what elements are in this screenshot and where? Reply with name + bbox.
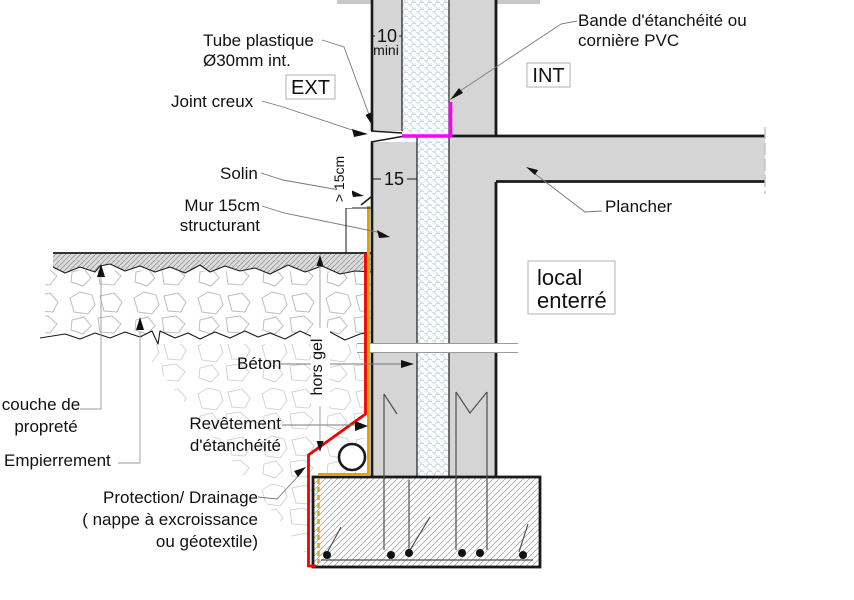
hors-gel-label: hors gel [309, 339, 326, 396]
revetement-label-2: d'étanchéité [190, 436, 281, 455]
ext-label: EXT [291, 77, 330, 99]
couche-label-1: couche de [2, 395, 80, 414]
dim-wall-thickness: 15 [384, 169, 404, 189]
construction-detail-drawing: 10 mini 15 > 15cm hors gel Tube plastiqu… [0, 0, 854, 600]
break-band [357, 343, 518, 353]
insulation-upper [402, 0, 450, 136]
tube-plastique-label-1: Tube plastique [203, 31, 314, 50]
arrowhead-joint-creux [352, 129, 368, 137]
solin-cap [361, 197, 371, 205]
plancher-label: Plancher [605, 197, 672, 216]
couche-label-2: propreté [14, 417, 77, 436]
protection-label-2: ( nappe à excroissance [82, 510, 258, 529]
facade-wall-upper [373, 0, 402, 131]
local-enterre-label-2: enterré [537, 288, 607, 313]
dim-facade-thickness-note: mini [373, 42, 399, 58]
structural-wall-lower [373, 142, 417, 477]
empierrement-label: Empierrement [4, 451, 111, 470]
bande-label-1: Bande d'étanchéité ou [578, 11, 747, 30]
solin-label: Solin [220, 164, 258, 183]
arrowhead-solin [351, 190, 364, 197]
insulation-lower [417, 135, 449, 477]
mur-label-2: structurant [180, 216, 261, 235]
protection-label-1: Protection/ Drainage [103, 488, 258, 507]
joint-creux-label: Joint creux [171, 92, 254, 111]
revetement-label-1: Revêtement [189, 414, 281, 433]
tube-plastique-label-2: Ø30mm int. [203, 51, 291, 70]
beton-label: Béton [237, 354, 281, 373]
mur-label-1: Mur 15cm [184, 196, 260, 215]
int-label: INT [532, 65, 564, 87]
leader-mur [262, 206, 382, 233]
wall-break-symbol [357, 343, 518, 353]
arrowhead-tube [366, 113, 373, 126]
leader-empierrement [118, 332, 140, 463]
dim-solin-height: > 15cm [331, 156, 347, 202]
leader-joint-creux [262, 101, 358, 132]
drain-pipe [339, 444, 365, 470]
protection-label-3: ou géotextile) [156, 532, 258, 551]
bande-label-2: cornière PVC [578, 31, 679, 50]
detail-section-svg: 10 mini 15 > 15cm hors gel Tube plastiqu… [0, 0, 854, 600]
local-enterre-label-1: local [537, 265, 582, 290]
